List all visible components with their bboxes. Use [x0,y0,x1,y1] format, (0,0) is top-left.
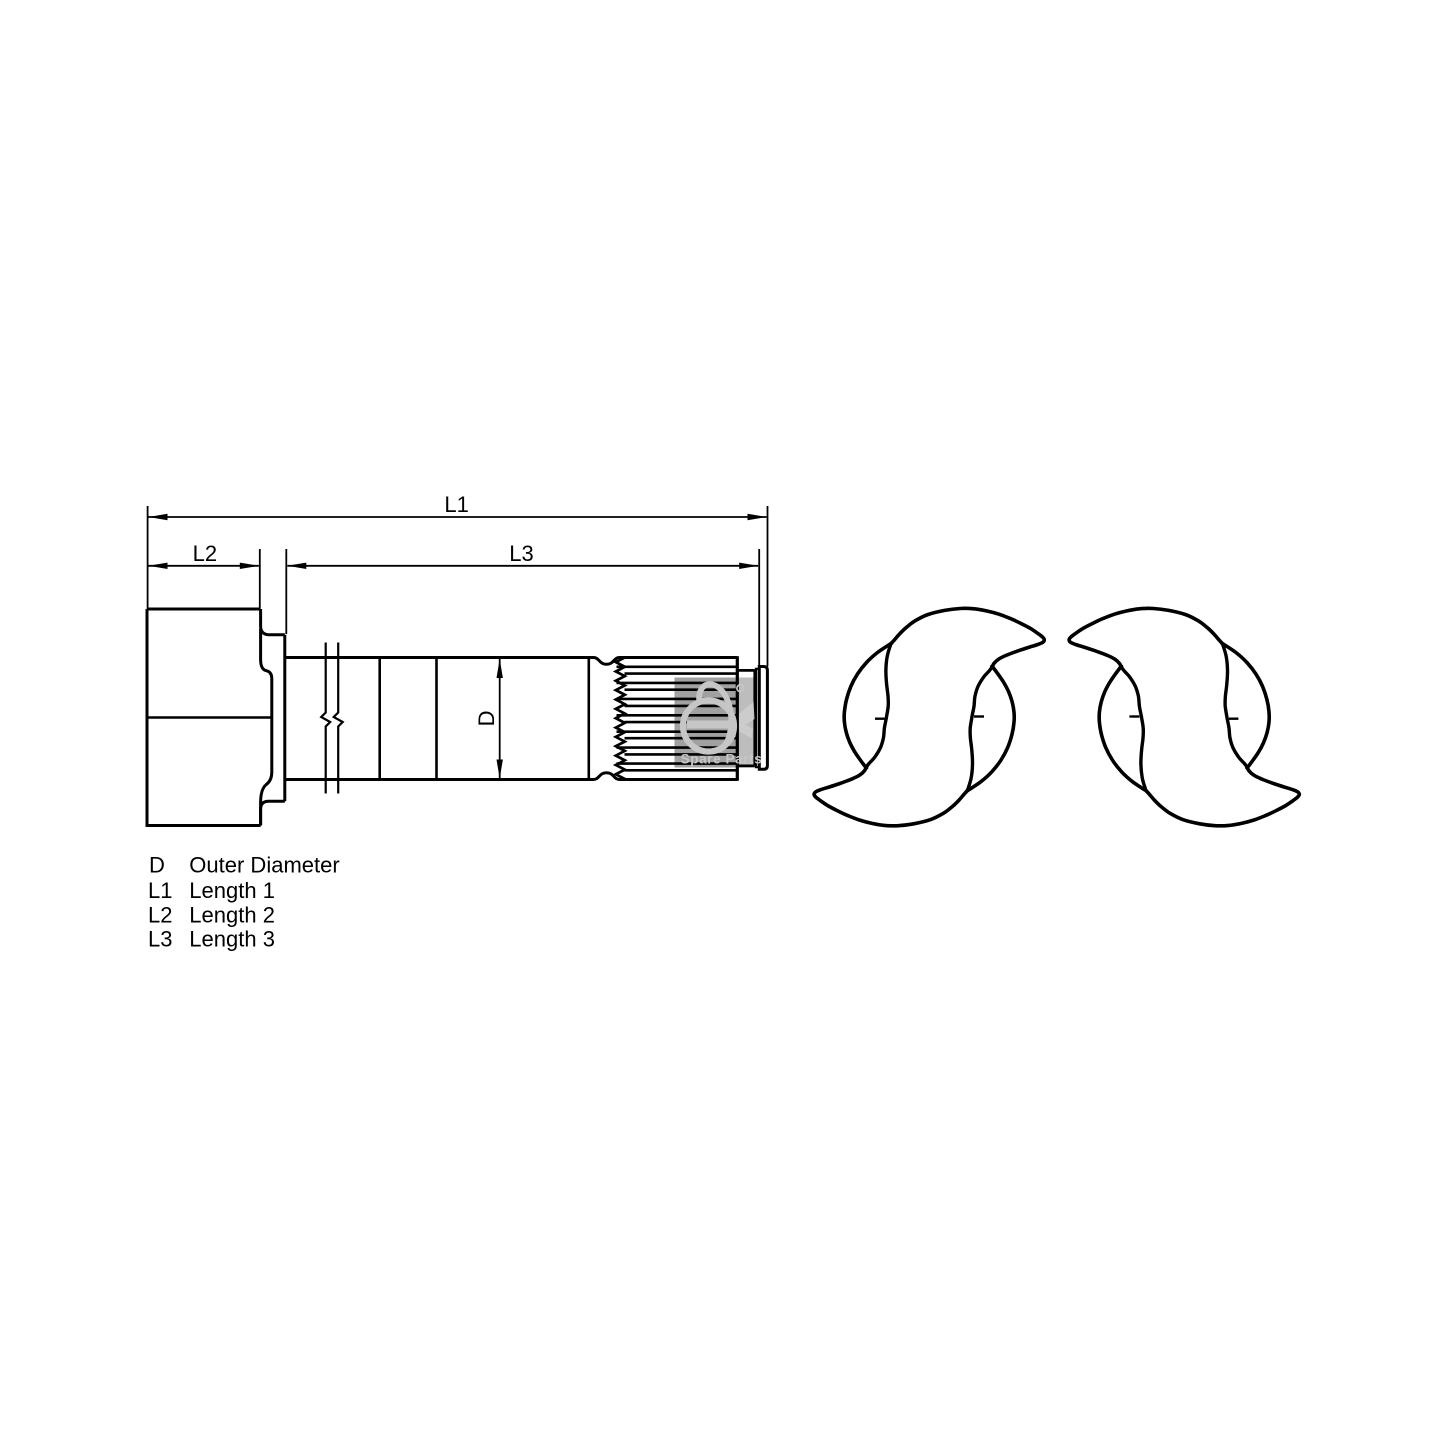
svg-text:Length 3: Length 3 [189,927,275,952]
svg-text:L3: L3 [148,927,172,952]
svg-text:Spare Parts: Spare Parts [681,752,763,767]
svg-text:D: D [474,710,499,726]
svg-text:L2: L2 [193,541,217,566]
svg-text:L3: L3 [509,541,533,566]
svg-text:D: D [149,853,165,878]
svg-text:Outer Diameter: Outer Diameter [189,853,339,878]
svg-text:Length 2: Length 2 [189,902,275,927]
svg-text:L1: L1 [444,492,468,517]
svg-text:L1: L1 [148,878,172,903]
svg-text:Length 1: Length 1 [189,878,275,903]
svg-text:L2: L2 [148,902,172,927]
